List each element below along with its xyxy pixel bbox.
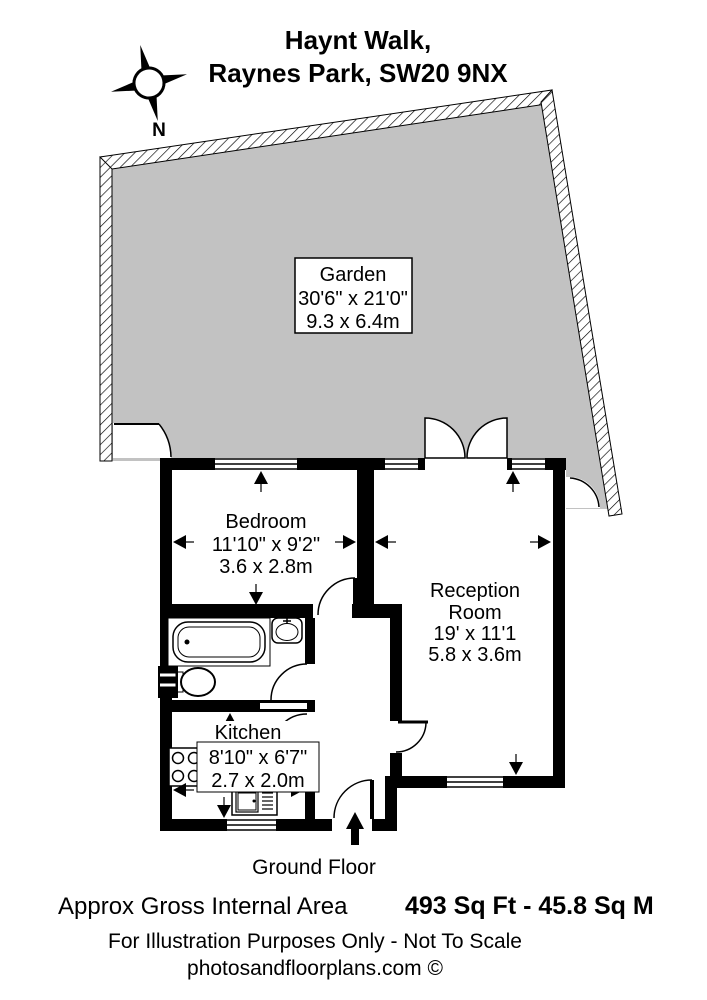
bedroom-name: Bedroom: [225, 511, 306, 533]
reception-window-bottom: [447, 776, 503, 788]
garden-gate-left: [113, 423, 171, 458]
floor-label: Ground Floor: [252, 856, 376, 879]
bedroom-window: [215, 458, 297, 470]
reception-dims-imperial: 19' x 11'1: [434, 623, 517, 645]
compass-rose-icon: N: [102, 36, 196, 141]
north-label: N: [152, 120, 166, 141]
bath-icon: [168, 618, 270, 666]
reception-dims-metric: 5.8 x 3.6m: [428, 644, 521, 666]
floor-plan-svg: Haynt Walk, Raynes Park, SW20 9NX N Gard…: [0, 0, 707, 1000]
area-label: Approx Gross Internal Area: [58, 893, 348, 920]
area-value: 493 Sq Ft - 45.8 Sq M: [405, 892, 654, 920]
property-title-line1: Haynt Walk,: [285, 25, 431, 55]
floorplan-page: Haynt Walk, Raynes Park, SW20 9NX N Gard…: [0, 0, 707, 1000]
reception-name-line2: Room: [448, 602, 501, 624]
garden-dims-metric: 9.3 x 6.4m: [306, 311, 399, 333]
kitchen-dims-metric: 2.7 x 2.0m: [211, 770, 304, 792]
credit: photosandfloorplans.com ©: [187, 957, 443, 980]
kitchen-window: [227, 819, 276, 831]
reception-window-top-left: [385, 458, 418, 470]
garden-name: Garden: [320, 264, 387, 286]
bedroom-label: Bedroom 11'10" x 9'2" 3.6 x 2.8m: [212, 511, 320, 578]
bedroom-dims-metric: 3.6 x 2.8m: [219, 556, 312, 578]
kitchen-name: Kitchen: [215, 722, 282, 744]
basin-icon: [272, 618, 302, 643]
bedroom-dims-imperial: 11'10" x 9'2": [212, 534, 320, 556]
toilet-icon: [158, 666, 215, 698]
kitchen-dims-imperial: 8'10" x 6'7": [209, 747, 308, 769]
reception-name-line1: Reception: [430, 580, 520, 602]
disclaimer: For Illustration Purposes Only - Not To …: [108, 930, 522, 953]
garden-dims-imperial: 30'6" x 21'0": [298, 288, 408, 310]
reception-label: Reception Room 19' x 11'1 5.8 x 3.6m: [428, 580, 521, 666]
property-title-line2: Raynes Park, SW20 9NX: [208, 58, 508, 88]
reception-window-top-right: [512, 458, 545, 470]
